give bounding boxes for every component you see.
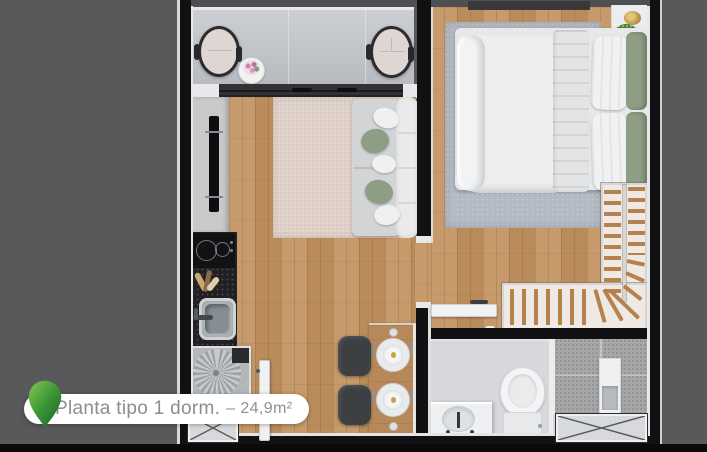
chair-arm — [408, 46, 414, 62]
toilet-seat — [508, 374, 537, 408]
stair-treads — [510, 289, 594, 325]
plate-food — [391, 352, 396, 358]
toilet-flush-button — [538, 424, 542, 428]
bed-pillow-green — [626, 112, 647, 192]
right-wall-inner-trim — [647, 6, 650, 436]
sink-faucet-stub — [194, 308, 198, 320]
washer-hinge — [213, 370, 219, 376]
plan-outer-line-right — [660, 0, 662, 444]
stair-treads — [604, 190, 621, 300]
plate-food — [391, 397, 396, 403]
sliding-door-handle — [337, 88, 357, 92]
washer-control-module — [232, 348, 249, 363]
chair-seam — [391, 38, 392, 52]
stair-treads — [628, 187, 645, 255]
floorplan-screenshot: Planta tipo 1 dorm. – 24,9m² — [0, 0, 707, 452]
bed-pillow-green — [626, 32, 647, 110]
round-chair — [370, 26, 413, 78]
bathroom-door-leaf — [431, 304, 497, 317]
sofa-back-seam — [398, 132, 416, 134]
bathroom-top-wall — [431, 328, 651, 339]
duct-box — [556, 414, 647, 442]
tv-bracket — [205, 196, 223, 198]
cutlery — [411, 389, 413, 403]
sofa-back-seam — [398, 167, 416, 169]
drinking-glass — [389, 422, 398, 431]
entry-door-handle — [256, 369, 260, 373]
left-wall-inner-trim — [191, 6, 193, 436]
floorplan-image[interactable] — [0, 0, 707, 452]
cooktop-knob — [230, 241, 233, 244]
tv-bracket — [205, 131, 223, 133]
bathroom-wall-trim — [428, 308, 431, 438]
x-mark — [558, 416, 645, 440]
cooktop-knob — [230, 249, 233, 252]
stool — [338, 336, 371, 376]
living-bedroom-wall — [417, 0, 431, 243]
wall-end-cap — [416, 236, 432, 243]
drinking-glass — [389, 328, 398, 337]
bed-pillow-white — [591, 112, 630, 190]
cooktop-burner — [215, 242, 230, 257]
round-chair — [198, 26, 240, 77]
right-wall — [650, 0, 660, 444]
balcony-window-sill — [193, 7, 414, 10]
bathroom-door-handle — [470, 300, 488, 304]
chair-arm — [236, 46, 242, 62]
bed-folded-blanket — [553, 30, 589, 192]
floorplan-label-title: Planta tipo 1 dorm. — [55, 398, 220, 420]
cooktop-burner — [196, 240, 217, 261]
sliding-door-handle — [292, 88, 312, 92]
bed-duvet-roll — [457, 35, 485, 191]
bed-pillow-white — [591, 35, 630, 110]
bottom-black-band — [0, 444, 707, 452]
flower-vase — [243, 60, 260, 75]
gold-tray — [624, 11, 641, 25]
chair-seam — [380, 51, 405, 52]
bedroom-side-trim — [431, 7, 433, 243]
chair-arm — [366, 44, 372, 60]
cutlery — [372, 342, 374, 356]
sofa-back-seam — [398, 202, 416, 204]
headboard-shelf — [468, 1, 590, 10]
floorplan-label-pill: Planta tipo 1 dorm. – 24,9m² — [24, 394, 309, 424]
left-wall — [180, 0, 191, 444]
floorplan-label-area: – 24,9m² — [226, 400, 292, 418]
cutlery — [372, 389, 374, 403]
stool — [338, 385, 371, 425]
balcony-tile-line — [288, 8, 289, 86]
chair-seam — [208, 50, 232, 51]
shower-column-inset — [602, 386, 618, 410]
cutlery — [411, 342, 413, 356]
basin-faucet — [457, 412, 460, 428]
chair-arm — [194, 44, 200, 60]
map-pin-icon — [28, 380, 62, 428]
slider-frame-right — [403, 84, 417, 98]
slider-frame-left — [193, 84, 219, 98]
